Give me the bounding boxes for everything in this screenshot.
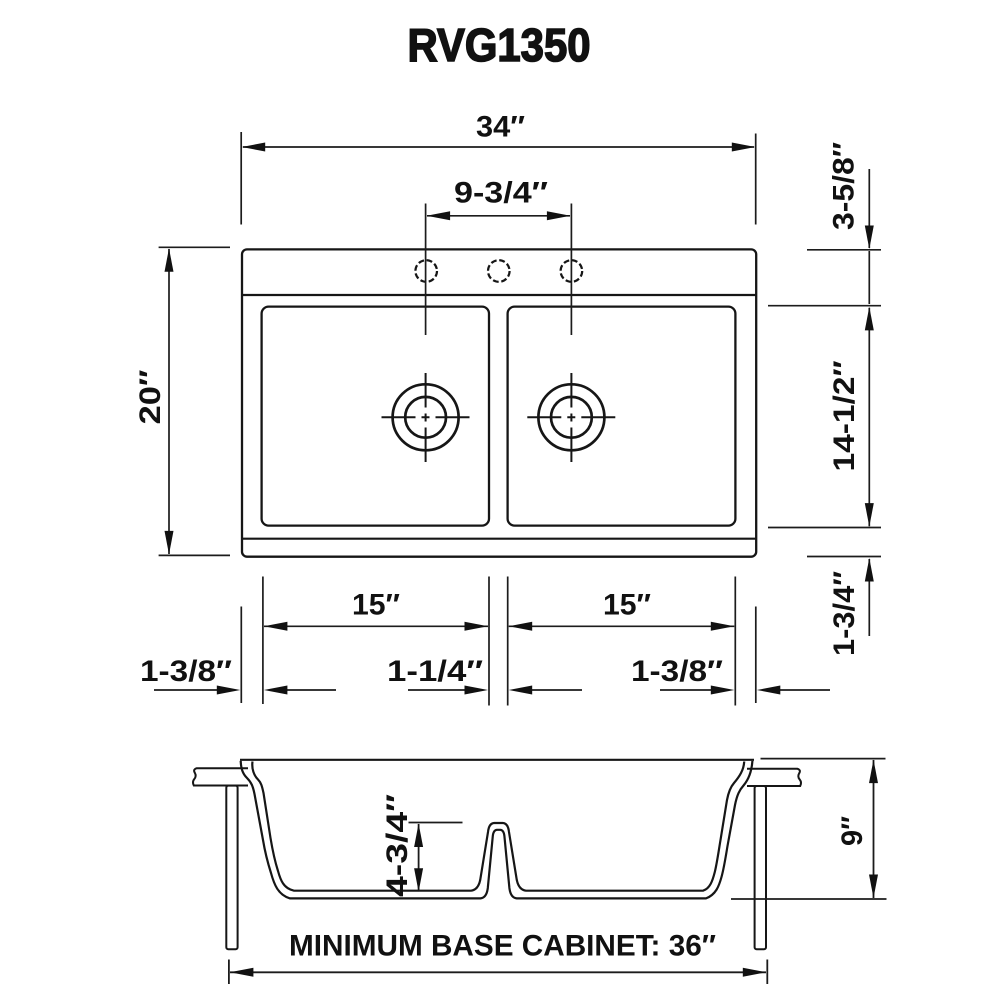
svg-text:20″: 20″: [134, 370, 167, 425]
svg-text:9-3/4″: 9-3/4″: [454, 177, 548, 210]
svg-text:14-1/2″: 14-1/2″: [828, 361, 861, 472]
svg-text:RVG1350: RVG1350: [408, 19, 591, 71]
svg-text:9″: 9″: [836, 816, 869, 846]
svg-text:1-3/8″: 1-3/8″: [140, 655, 232, 688]
svg-text:3-5/8″: 3-5/8″: [828, 142, 861, 230]
svg-text:1-3/8″: 1-3/8″: [631, 655, 723, 688]
svg-text:MINIMUM BASE CABINET: 36″: MINIMUM BASE CABINET: 36″: [289, 930, 716, 963]
svg-text:1-3/4″: 1-3/4″: [828, 571, 861, 656]
svg-text:34″: 34″: [476, 111, 525, 144]
svg-text:4-3/4″: 4-3/4″: [381, 794, 414, 897]
svg-text:15″: 15″: [603, 589, 651, 622]
svg-text:1-1/4″: 1-1/4″: [387, 655, 483, 688]
svg-text:15″: 15″: [352, 589, 400, 622]
